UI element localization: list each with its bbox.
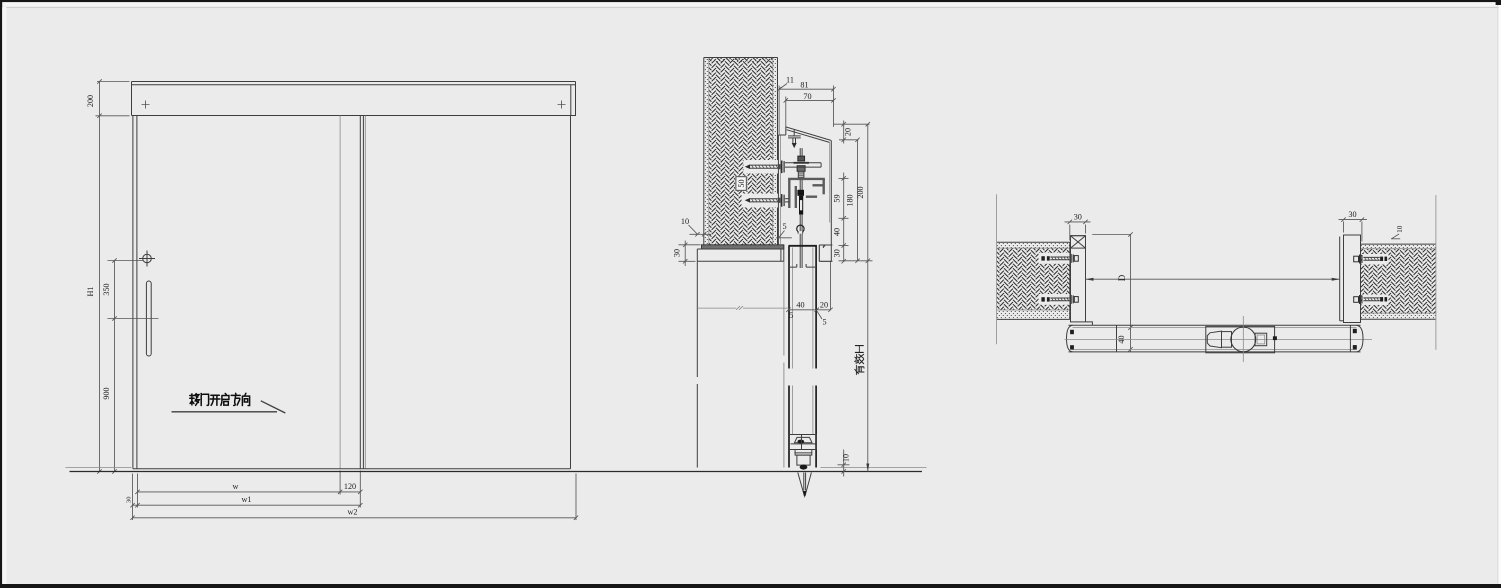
svg-text:40: 40 [796,301,804,310]
svg-text:11: 11 [786,76,794,85]
svg-text:5: 5 [822,318,826,327]
svg-text:59: 59 [832,194,841,202]
svg-text:81: 81 [800,81,808,90]
svg-text:200: 200 [86,95,95,107]
svg-text:30: 30 [1348,210,1356,219]
svg-text:w1: w1 [241,495,251,504]
svg-text:120: 120 [344,482,356,491]
svg-text:30: 30 [673,249,682,257]
svg-text:50: 50 [737,179,746,187]
svg-text:20: 20 [843,128,852,136]
svg-text:30: 30 [125,497,132,504]
svg-text:w: w [233,482,239,491]
svg-text:350: 350 [102,283,111,295]
svg-text:10: 10 [681,217,689,226]
svg-text:5: 5 [789,311,793,320]
svg-text:200: 200 [856,186,865,198]
svg-text:D: D [1117,274,1127,281]
svg-text:900: 900 [102,387,111,399]
svg-text:10: 10 [842,454,851,462]
svg-text:5: 5 [782,222,786,231]
svg-text:20: 20 [820,301,828,310]
svg-text:40: 40 [832,228,841,236]
svg-text:70: 70 [803,92,811,101]
svg-text:10: 10 [1396,225,1404,233]
svg-text:w2: w2 [347,508,357,517]
svg-text:H1: H1 [86,286,95,296]
svg-text:30: 30 [832,249,841,257]
svg-text:30: 30 [1074,213,1082,222]
svg-text:180: 180 [845,194,854,206]
